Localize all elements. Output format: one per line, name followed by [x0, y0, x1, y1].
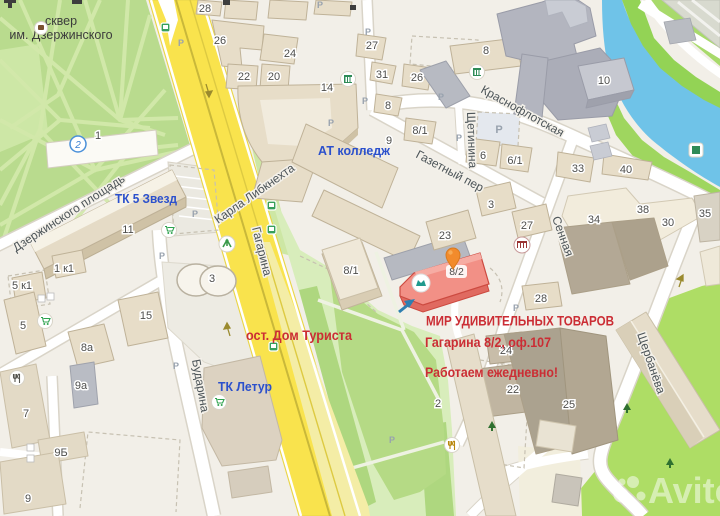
svg-text:Работаем ежедневно!: Работаем ежедневно!	[425, 365, 558, 380]
svg-text:9: 9	[25, 493, 31, 505]
svg-text:Avito: Avito	[648, 470, 720, 511]
svg-text:26: 26	[214, 35, 226, 47]
svg-text:Р: Р	[192, 209, 198, 219]
svg-text:2: 2	[74, 140, 81, 151]
svg-text:33: 33	[572, 163, 584, 175]
svg-text:Р: Р	[328, 118, 334, 128]
svg-text:2: 2	[435, 398, 441, 410]
svg-text:Р: Р	[178, 38, 184, 48]
svg-text:5 к1: 5 к1	[12, 280, 32, 292]
svg-text:ТК Летур: ТК Летур	[218, 379, 272, 394]
svg-text:6/1: 6/1	[507, 155, 522, 167]
svg-text:22: 22	[238, 71, 250, 83]
svg-text:9Б: 9Б	[54, 447, 67, 459]
svg-text:1 к1: 1 к1	[54, 263, 74, 275]
svg-text:23: 23	[439, 230, 451, 242]
svg-text:5: 5	[20, 320, 26, 332]
svg-text:26: 26	[411, 72, 423, 84]
svg-text:1: 1	[95, 130, 101, 142]
svg-text:30: 30	[662, 217, 674, 229]
svg-text:Щетинина: Щетинина	[464, 112, 480, 169]
svg-text:Р: Р	[456, 133, 462, 143]
svg-text:7: 7	[23, 408, 29, 420]
svg-text:28: 28	[199, 3, 211, 15]
svg-text:ост. Дом Туриста: ост. Дом Туриста	[246, 328, 352, 343]
svg-text:Р: Р	[362, 96, 368, 106]
svg-text:3: 3	[488, 199, 494, 211]
svg-text:Р: Р	[317, 0, 323, 10]
svg-text:Р: Р	[159, 251, 165, 261]
svg-text:8/1: 8/1	[412, 125, 427, 137]
svg-text:6: 6	[480, 150, 486, 162]
svg-text:АТ колледж: АТ колледж	[318, 143, 391, 158]
svg-text:Р: Р	[389, 435, 395, 445]
svg-text:14: 14	[321, 82, 333, 94]
svg-text:Гагарина 8/2, оф.107: Гагарина 8/2, оф.107	[425, 335, 551, 350]
svg-text:им. Дзержинского: им. Дзержинского	[9, 28, 112, 42]
svg-text:8а: 8а	[81, 342, 94, 354]
svg-text:Р: Р	[495, 124, 502, 136]
svg-text:24: 24	[284, 48, 296, 60]
svg-text:Р: Р	[365, 27, 371, 37]
svg-text:10: 10	[598, 75, 610, 87]
svg-text:25: 25	[563, 399, 575, 411]
svg-text:Р: Р	[513, 303, 519, 313]
svg-text:27: 27	[366, 40, 378, 52]
svg-text:3: 3	[209, 273, 215, 285]
svg-text:31: 31	[376, 69, 388, 81]
svg-text:11: 11	[122, 224, 133, 236]
svg-text:8: 8	[385, 100, 391, 112]
svg-text:8: 8	[483, 45, 489, 57]
svg-text:9а: 9а	[75, 380, 88, 392]
svg-text:Р: Р	[438, 92, 444, 102]
svg-text:Р: Р	[173, 361, 179, 371]
svg-text:20: 20	[268, 71, 280, 83]
svg-text:40: 40	[620, 164, 632, 176]
svg-text:34: 34	[588, 214, 600, 226]
svg-text:22: 22	[507, 384, 519, 396]
svg-text:38: 38	[637, 204, 649, 216]
svg-text:28: 28	[535, 293, 547, 305]
svg-text:35: 35	[699, 208, 711, 220]
svg-text:МИР УДИВИТЕЛЬНЫХ ТОВАРОВ: МИР УДИВИТЕЛЬНЫХ ТОВАРОВ	[426, 313, 614, 329]
svg-text:15: 15	[140, 310, 152, 322]
svg-text:8/2: 8/2	[449, 266, 464, 278]
svg-text:8/1: 8/1	[343, 265, 358, 277]
svg-text:ТК 5 Звезд: ТК 5 Звезд	[115, 191, 178, 206]
svg-text:сквер: сквер	[45, 14, 77, 28]
svg-text:27: 27	[521, 220, 533, 232]
